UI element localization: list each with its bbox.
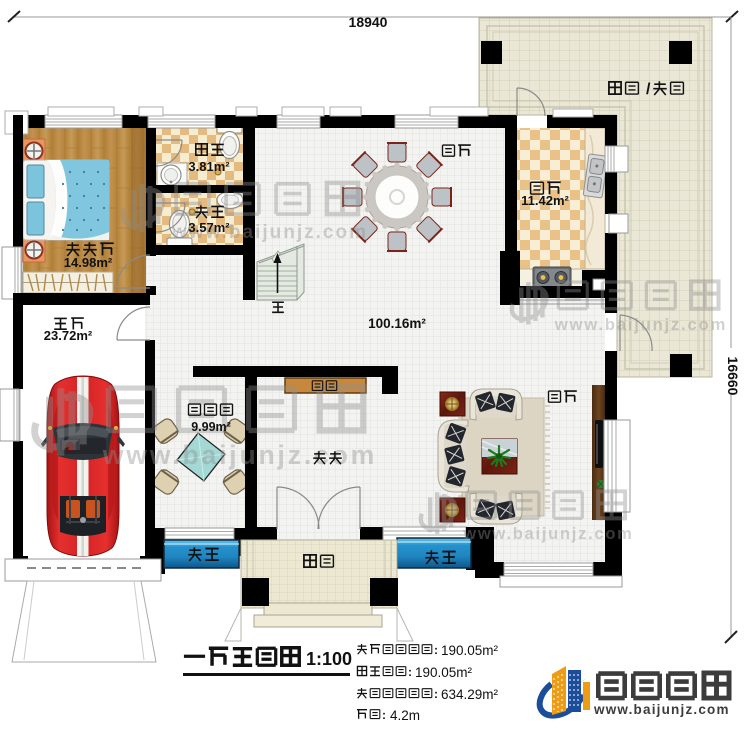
svg-text:www.baijunjz.com: www.baijunjz.com [593, 702, 730, 717]
svg-text:11.42m²: 11.42m² [521, 193, 569, 208]
svg-text:634.29m²: 634.29m² [441, 687, 499, 702]
svg-text:100.16m²: 100.16m² [368, 316, 426, 331]
svg-text:3.81m²: 3.81m² [188, 159, 230, 174]
svg-text:18940: 18940 [349, 14, 388, 30]
svg-text:3.57m²: 3.57m² [188, 220, 230, 235]
svg-text:4.2m: 4.2m [390, 708, 420, 723]
svg-text:190.05m²: 190.05m² [441, 643, 499, 658]
svg-text:16660: 16660 [725, 357, 741, 396]
svg-text:190.05m²: 190.05m² [415, 665, 473, 680]
svg-text::: : [434, 687, 438, 701]
svg-text:9.99m²: 9.99m² [191, 420, 231, 434]
svg-text::: : [434, 643, 438, 657]
svg-text::: : [408, 665, 412, 679]
svg-text:14.98m²: 14.98m² [64, 255, 113, 270]
svg-text:23.72m²: 23.72m² [44, 328, 93, 343]
svg-text::: : [382, 708, 386, 722]
svg-text:/: / [646, 81, 651, 98]
svg-text:1:100: 1:100 [306, 649, 352, 669]
